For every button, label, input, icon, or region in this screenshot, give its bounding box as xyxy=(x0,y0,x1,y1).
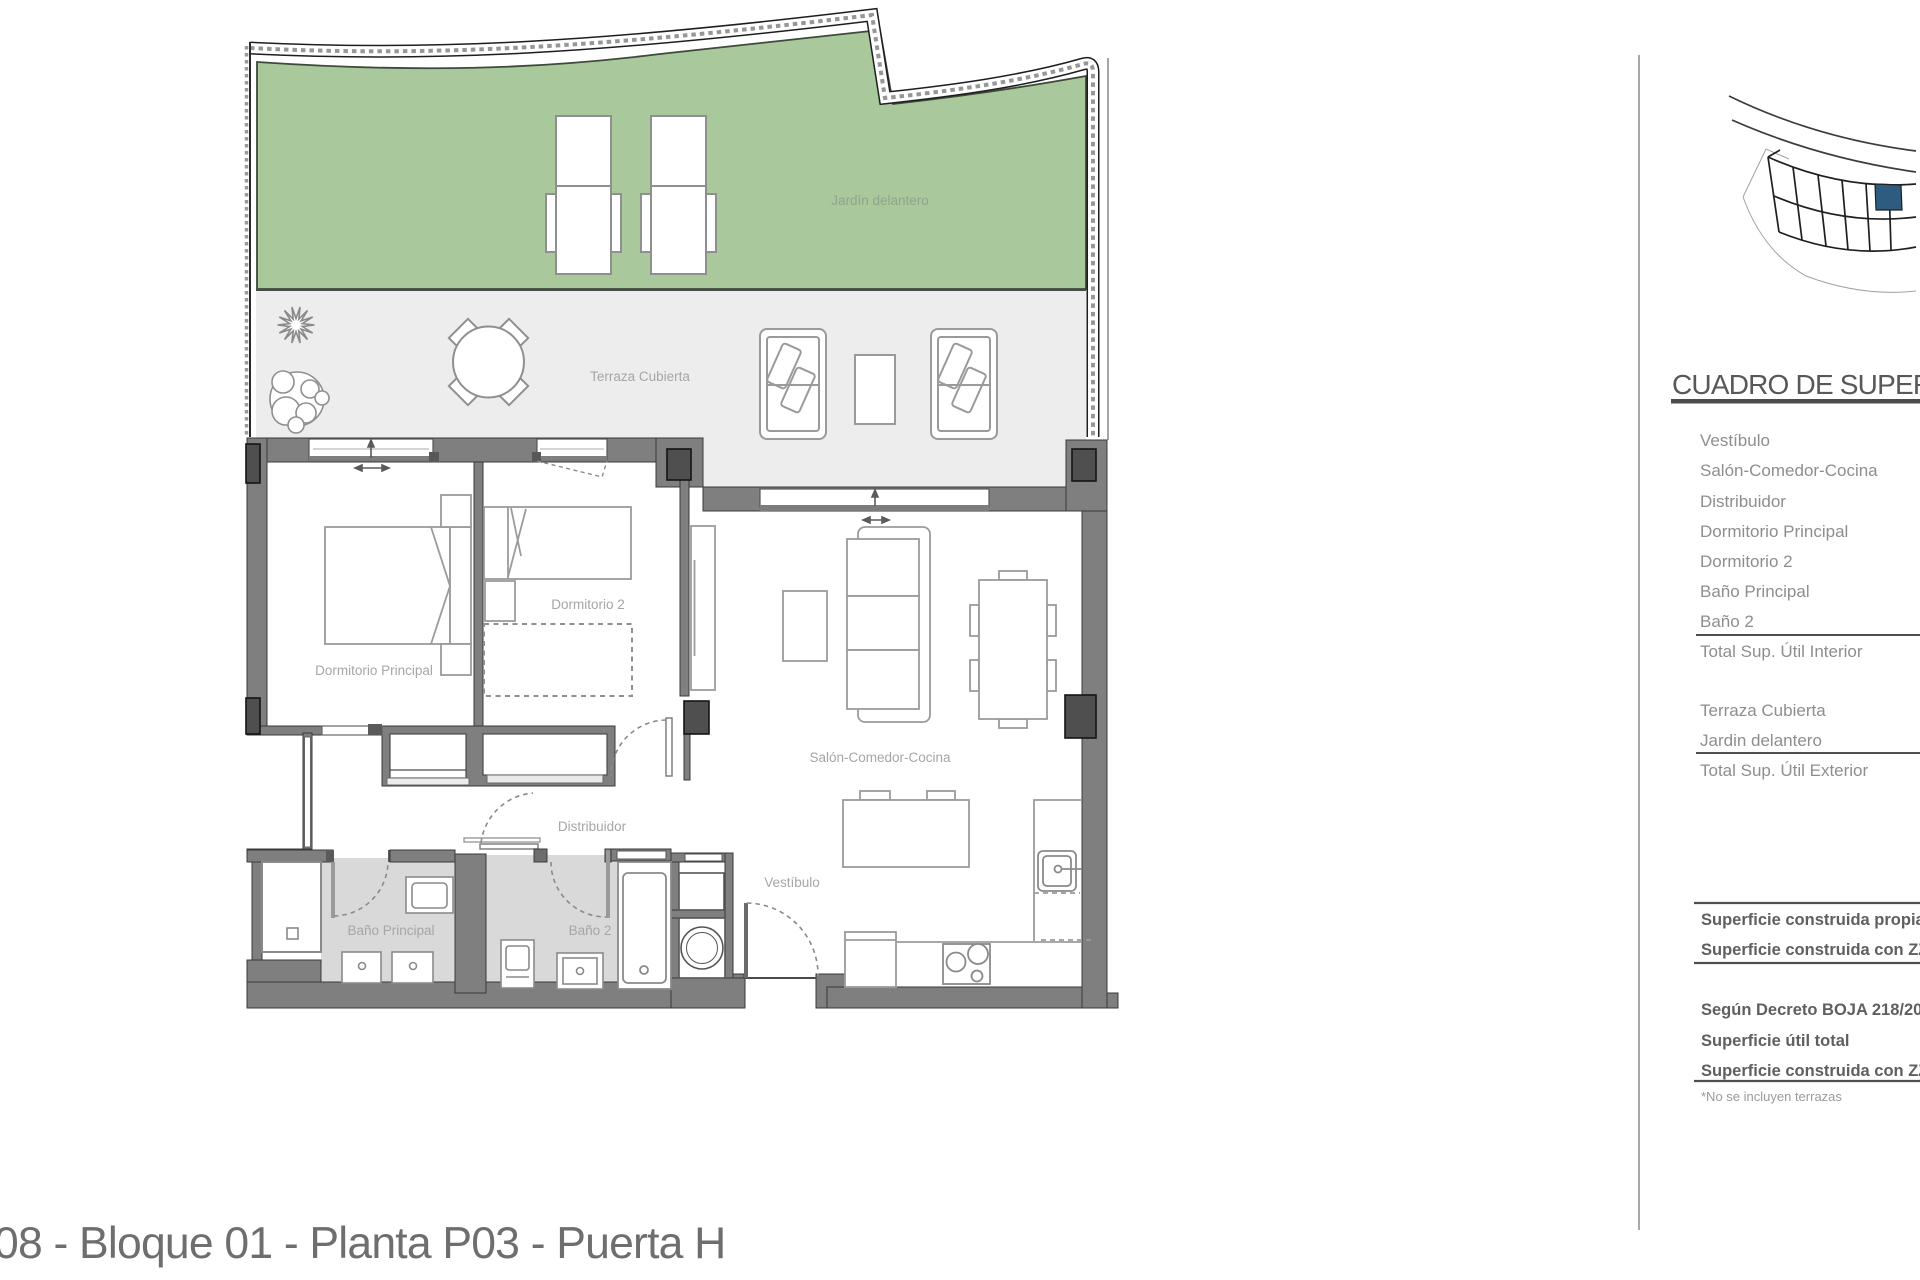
svg-text:Vestíbulo: Vestíbulo xyxy=(764,875,820,890)
svg-text:Salón-Comedor-Cocina: Salón-Comedor-Cocina xyxy=(809,750,951,765)
svg-text:Dormitorio 2: Dormitorio 2 xyxy=(551,597,625,612)
svg-text:Baño Principal: Baño Principal xyxy=(347,923,434,938)
svg-text:Terraza Cubierta: Terraza Cubierta xyxy=(1700,701,1826,720)
svg-text:Distribuidor: Distribuidor xyxy=(558,819,627,834)
svg-text:Terraza Cubierta: Terraza Cubierta xyxy=(590,369,690,384)
svg-text:08 - Bloque 01 - Planta P03 -: 08 - Bloque 01 - Planta P03 - Puerta H xyxy=(0,1219,726,1268)
svg-text:Jardin delantero: Jardin delantero xyxy=(1700,731,1822,750)
svg-text:Dormitorio 2: Dormitorio 2 xyxy=(1700,552,1793,571)
svg-text:Total Sup. Útil Exterior: Total Sup. Útil Exterior xyxy=(1700,761,1869,780)
svg-text:Superficie construida con ZZCC: Superficie construida con ZZCC xyxy=(1701,941,1920,959)
svg-text:CUADRO DE SUPERFICIES: CUADRO DE SUPERFICIES xyxy=(1672,369,1920,400)
svg-text:Baño 2: Baño 2 xyxy=(569,923,612,938)
svg-text:Según Decreto BOJA 218/2006: Según Decreto BOJA 218/2006 xyxy=(1701,1001,1920,1019)
svg-text:Jardín delantero: Jardín delantero xyxy=(831,193,929,208)
svg-text:Baño Principal: Baño Principal xyxy=(1700,582,1810,601)
svg-text:Superficie útil total: Superficie útil total xyxy=(1701,1032,1850,1050)
svg-text:Baño 2: Baño 2 xyxy=(1700,612,1754,631)
svg-text:Distribuidor: Distribuidor xyxy=(1700,492,1786,511)
svg-text:Superficie construida con ZZCC: Superficie construida con ZZCC xyxy=(1701,1062,1920,1080)
svg-text:Dormitorio Principal: Dormitorio Principal xyxy=(315,663,433,678)
svg-text:*No se incluyen terrazas: *No se incluyen terrazas xyxy=(1701,1089,1842,1104)
svg-text:Dormitorio Principal: Dormitorio Principal xyxy=(1700,522,1848,541)
svg-text:Salón-Comedor-Cocina: Salón-Comedor-Cocina xyxy=(1700,461,1878,480)
svg-text:Total Sup. Útil Interior: Total Sup. Útil Interior xyxy=(1700,642,1863,661)
svg-text:Vestíbulo: Vestíbulo xyxy=(1700,431,1770,450)
svg-text:Superficie construida propia: Superficie construida propia xyxy=(1701,911,1920,929)
